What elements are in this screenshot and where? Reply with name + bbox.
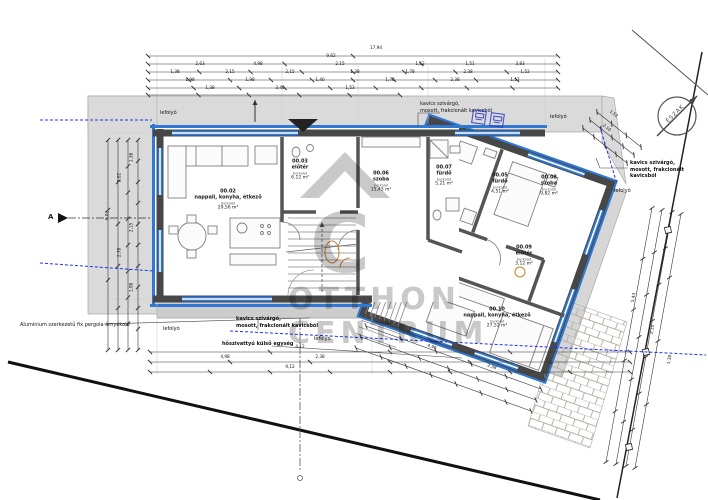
plan-linework [0, 0, 708, 500]
approval-stamp-icon [489, 112, 505, 128]
approval-stamp-icon [471, 109, 487, 125]
floor-plan-canvas: C OTTHON CENTRUM 00.02nappali, konyha, é… [0, 0, 708, 500]
section-marker-label: A [48, 213, 53, 221]
